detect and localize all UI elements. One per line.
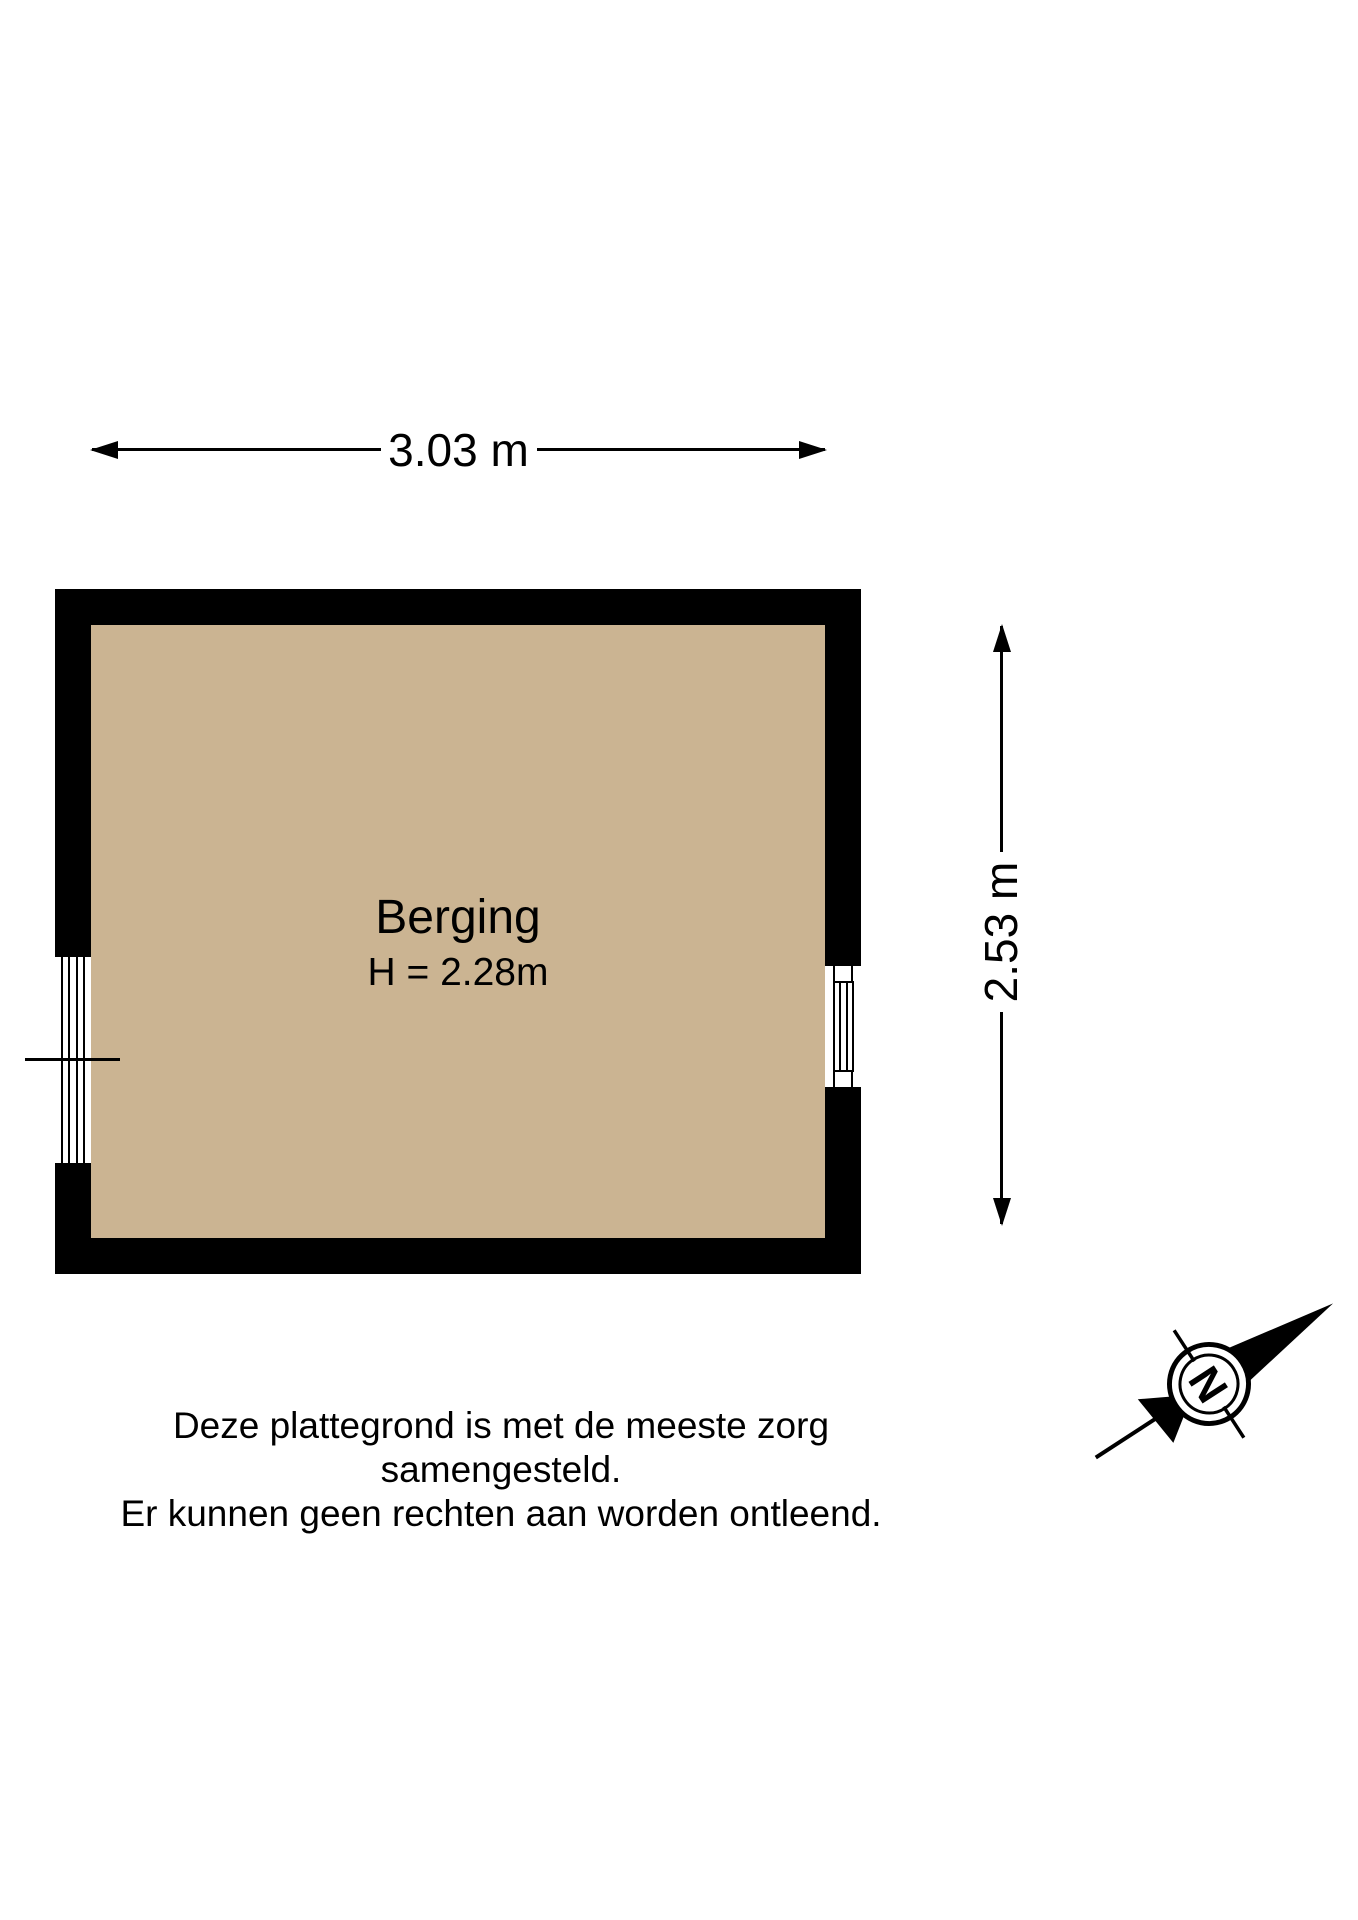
room-height-label: H = 2.28m xyxy=(55,950,861,996)
arrowhead-right-icon xyxy=(799,441,827,459)
window-divider-line xyxy=(25,1058,120,1061)
compass-icon: N xyxy=(1059,1240,1358,1530)
height-dimension: 2.53 m xyxy=(976,624,1026,1226)
window-glazing-line xyxy=(839,983,841,1070)
floorplan-page: 3.03 m 2.53 m Bergin xyxy=(0,0,1358,1920)
height-dimension-label: 2.53 m xyxy=(973,852,1029,1012)
window-glazing-line xyxy=(846,983,848,1070)
disclaimer-line-1: Deze plattegrond is met de meeste zorg s… xyxy=(55,1404,947,1492)
height-dimension-line-top xyxy=(1000,626,1003,852)
disclaimer-line-2: Er kunnen geen rechten aan worden ontlee… xyxy=(55,1492,947,1536)
disclaimer: Deze plattegrond is met de meeste zorg s… xyxy=(55,1404,947,1536)
height-dimension-line-bottom xyxy=(1000,1012,1003,1224)
arrowhead-down-icon xyxy=(993,1198,1011,1226)
room-name-label: Berging xyxy=(55,892,861,944)
width-dimension: 3.03 m xyxy=(90,422,827,482)
floorplan-walls: Berging H = 2.28m xyxy=(55,589,861,1274)
width-dimension-line-right xyxy=(537,448,825,451)
